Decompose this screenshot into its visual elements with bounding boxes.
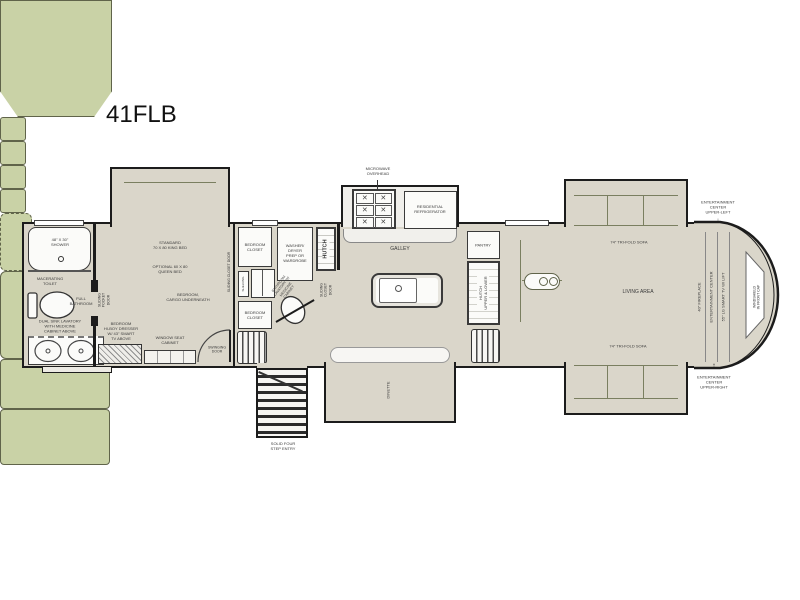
pocket-door-label: SLIDING POCKET DOOR <box>97 293 110 307</box>
stove-burners: ✕✕ ✕✕ ✕✕ <box>356 193 392 225</box>
bed-optional-label: OPTIONAL 60 X 80 QUEEN BED <box>153 264 188 274</box>
window <box>252 220 278 226</box>
entertainment-center-label: ENTERTAINMENT CENTER <box>709 271 714 322</box>
burner-icon: ✕ <box>356 205 374 216</box>
window <box>505 220 549 226</box>
arrow-up-icon: ↑ <box>712 363 716 372</box>
hall-cabinet-divider <box>262 270 263 296</box>
ec-upper-right-label: ENTERTAINMENT CENTER UPPER-RIGHT <box>697 375 731 390</box>
sofa-top-divider <box>643 196 644 225</box>
cap-divider-line <box>705 232 706 362</box>
bed-pillow-line <box>124 182 216 183</box>
window <box>34 220 84 226</box>
rear-step <box>42 367 112 373</box>
bath-door-jamb-1 <box>91 280 98 292</box>
floorplan-41flb: 41FLB 48" X 30" SHOWER MACERATING TOILET… <box>0 0 800 600</box>
trifold-sofa-bottom <box>0 409 110 465</box>
page-title: 41FLB <box>106 101 177 129</box>
bedroom-closet-door-label: SLIDING CLOSET DOOR <box>227 252 231 292</box>
sofa-bottom-label: 74" TRI-FOLD SOFA <box>609 344 646 349</box>
lavatory-label: DUAL SINK LAVATORY WITH MEDICINE CABINET… <box>39 319 81 334</box>
full-bathroom-label: FULL BATHROOM <box>70 296 93 306</box>
washer-dryer-label: WASHER/ DRYER PREP OR WARDROBE <box>283 243 306 263</box>
cap-divider-line <box>729 232 730 362</box>
window-seat-cabinet <box>144 350 196 364</box>
sofa-bottom-divider <box>643 366 644 398</box>
dresser-label: BEDROOM HI-BOY DRESSER W/ 43" SMART TV A… <box>104 321 138 341</box>
living-area-label: LIVING AREA <box>622 289 653 295</box>
burner-icon: ✕ <box>375 205 393 216</box>
dinette-chair <box>0 189 26 213</box>
bedroom-closet-top-label: BEDROOM CLOSET <box>245 242 266 252</box>
sink-faucet-icon <box>395 285 402 292</box>
bedroom-cargo-label: BEDROOM, CARGO UNDERNEATH <box>166 292 209 302</box>
bed-slideout <box>110 167 230 227</box>
cupholder-icon <box>539 277 548 286</box>
window-seat-label: WINDOW SEAT CABINET <box>156 335 185 345</box>
galley-left-wall <box>337 224 340 270</box>
bedroom-closet-bottom-label: BEDROOM CLOSET <box>245 310 266 320</box>
sofa-top-front-line <box>574 225 678 226</box>
dinette-label: DINETTE <box>386 381 391 398</box>
galley-label: GALLEY <box>390 246 409 252</box>
shower <box>28 227 91 271</box>
tv-label: 55" LG SMART TV W/ LIFT <box>721 273 726 322</box>
bath-door-jamb-2 <box>91 316 98 326</box>
hutch-upper-lower-label: HUTCH UPPER & LOWER <box>477 275 489 310</box>
galley-counter <box>343 229 457 243</box>
ec-upper-left-label: ENTERTAINMENT CENTER UPPER-LEFT <box>701 200 735 215</box>
sofa-bottom-back-line <box>574 398 678 399</box>
dresser <box>98 344 142 364</box>
cupholder-icon <box>549 277 558 286</box>
toilet-label: MACERATING TOILET <box>37 276 63 286</box>
sofa-top-divider <box>607 196 608 225</box>
microwave-label: MICROWAVE OVERHEAD <box>366 166 391 176</box>
burner-icon: ✕ <box>375 217 393 228</box>
sofa-bottom-front-line <box>574 365 678 366</box>
bedroom-closet-wall <box>233 224 235 366</box>
bedroom-steps <box>237 331 267 364</box>
burner-icon: ✕ <box>356 193 374 204</box>
shower-drain <box>58 256 64 262</box>
bath-wall-upper <box>93 224 96 280</box>
pantry-label: PANTRY <box>475 243 491 248</box>
burner-icon: ✕ <box>356 217 374 228</box>
sofa-slideout-bottom <box>564 362 688 415</box>
entry-steps <box>256 368 308 438</box>
hutch-bedroom-label: HUTCH <box>323 239 330 258</box>
entry-steps-label: SOLID FOUR STEP ENTRY <box>271 441 296 451</box>
sofa-bottom-divider <box>607 366 608 398</box>
bed-standard-label: STANDARD 70 X 80 KING BED <box>153 240 187 250</box>
dinette-header <box>330 347 450 363</box>
king-bed <box>0 0 112 117</box>
fireplace-label: 40" FIREPLACE <box>697 282 702 311</box>
sofa-slideout-top <box>564 179 688 227</box>
galley-closet-door-label: SLIDING CLOSET DOOR <box>319 283 332 297</box>
bath-wall-lower <box>93 326 96 366</box>
dinette-chair <box>0 165 26 189</box>
sofa-top-back-line <box>574 195 678 196</box>
living-steps <box>471 329 500 363</box>
refrigerator-label: RESIDENTIAL REFRIGERATOR <box>414 204 445 214</box>
burner-icon: ✕ <box>375 193 393 204</box>
shower-label: 48" X 30" SHOWER <box>51 237 69 247</box>
shelving-label: SHELVING <box>242 277 246 292</box>
arrow-down-icon: ↓ <box>716 218 720 227</box>
cap-divider-line <box>717 232 718 362</box>
sofa-top-label: 74" TRI-FOLD SOFA <box>610 240 647 245</box>
dinette-chair <box>0 141 26 165</box>
shower-ledge <box>28 270 91 272</box>
swinging-door-label: SWINGING DOOR <box>208 346 226 355</box>
windshield-label: WINDSHIELD IN FRONT CAP <box>753 285 762 310</box>
dinette-chair <box>0 117 26 141</box>
